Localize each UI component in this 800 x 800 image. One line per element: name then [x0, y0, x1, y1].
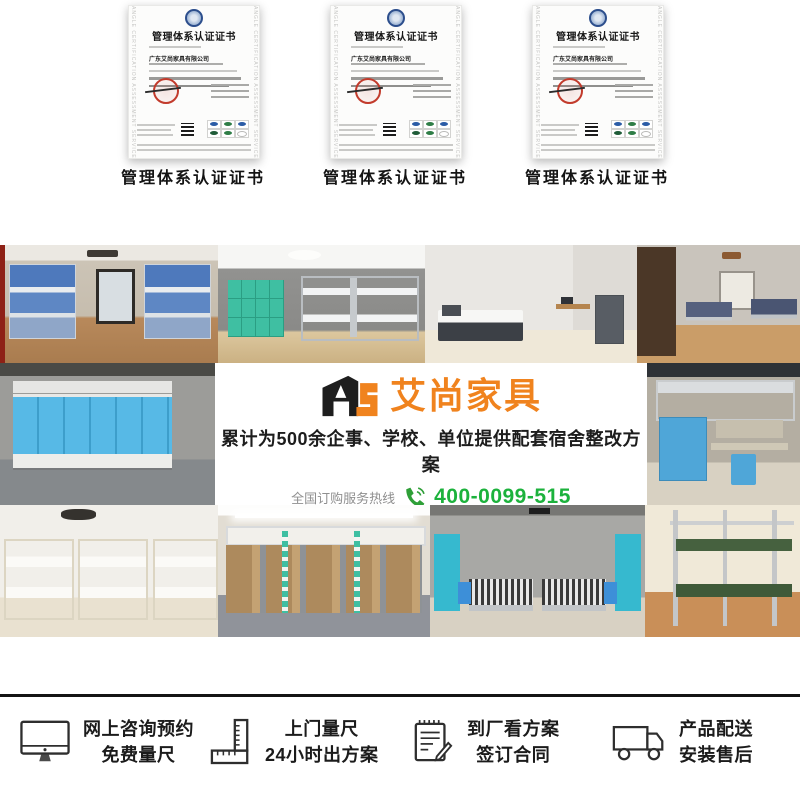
teal-wardrobe-right	[615, 534, 641, 611]
photo-green-board-bunk-room	[645, 505, 800, 637]
ceiling-light	[87, 250, 118, 257]
certificate-card: ANGLE CERTIFICATION ASSESSMENT SERVICES …	[128, 5, 260, 159]
photo-single-bed-study-room	[425, 245, 637, 363]
bunk-bed-left	[9, 264, 76, 339]
contract-icon	[412, 718, 454, 766]
certifier-emblem-icon	[387, 9, 405, 27]
desk	[556, 304, 590, 309]
feature-line2: 签订合同	[467, 742, 560, 768]
teal-ladder	[354, 531, 360, 613]
bed-right	[751, 299, 797, 344]
certificate-caption: 管理体系认证证书	[295, 164, 495, 188]
photo-teal-wardrobe-twin-room	[430, 505, 645, 637]
bunk-post	[772, 510, 777, 626]
qr-code	[383, 123, 396, 136]
page: ANGLE CERTIFICATION ASSESSMENT SERVICES …	[0, 0, 800, 800]
ceiling-light	[61, 509, 96, 520]
blue-chair	[458, 582, 471, 604]
shelf	[716, 420, 783, 438]
certificate-company: 广东艾尚家具有限公司	[149, 54, 209, 63]
photo-cyan-cabinet-dorm	[0, 363, 215, 505]
ceiling-light	[722, 252, 742, 259]
hotline-label: 全国订购服务热线	[291, 488, 395, 507]
banner-subtitle: 累计为500余企事、学校、单位提供配套宿舍整改方案	[215, 425, 647, 477]
certificate-title: 管理体系认证证书	[331, 28, 461, 43]
feature-onsite-measure: 上门量尺 24小时出方案	[210, 710, 379, 774]
locker-cabinet	[228, 280, 284, 337]
qr-code	[181, 123, 194, 136]
laptop	[561, 297, 574, 304]
as-logo-icon	[320, 374, 380, 418]
bed-left	[686, 302, 732, 342]
window	[96, 269, 135, 325]
feature-sign-contract: 到厂看方案 签订合同	[412, 710, 560, 774]
features-divider	[0, 694, 800, 697]
feature-online-consult: 网上咨询预约 免费量尺	[20, 710, 194, 774]
photo-wood-floor-bunk-room	[637, 245, 800, 363]
feature-line1: 上门量尺	[265, 716, 379, 742]
metal-bunk-bed	[301, 276, 419, 341]
certificate-title: 管理体系认证证书	[533, 28, 663, 43]
feature-line1: 到厂看方案	[467, 716, 560, 742]
wardrobe-desk-units	[226, 545, 421, 614]
photo-cream-bunk-room	[0, 505, 218, 637]
feature-line2: 免费量尺	[83, 742, 194, 768]
brand-banner: 艾尚家具 累计为500余企事、学校、单位提供配套宿舍整改方案 全国订购服务热线 …	[215, 363, 647, 505]
logo-row: 艾尚家具	[215, 374, 647, 418]
truck-icon	[612, 721, 666, 763]
ceiling-light	[288, 250, 321, 261]
photo-loft-bed-desk-room	[647, 363, 800, 505]
qr-code	[585, 123, 598, 136]
certificate-company: 广东艾尚家具有限公司	[553, 54, 613, 63]
brand-name: 艾尚家具	[390, 378, 542, 414]
loft-rail	[13, 381, 172, 392]
feature-delivery-install: 产品配送 安装售后	[612, 710, 753, 774]
photo-teal-lockers-bunk-room	[218, 245, 425, 363]
desk-row	[13, 454, 172, 470]
striped-bed-left	[469, 579, 534, 611]
bunk-bed	[153, 539, 218, 620]
ceiling-light	[529, 508, 551, 515]
teal-wardrobe-left	[434, 534, 460, 611]
feature-line2: 安装售后	[679, 742, 753, 768]
dark-wardrobe	[637, 247, 676, 356]
striped-bed-right	[542, 579, 607, 611]
feature-line1: 产品配送	[679, 716, 753, 742]
blue-chair	[604, 582, 617, 604]
certificate-card: ANGLE CERTIFICATION ASSESSMENT SERVICES …	[532, 5, 664, 159]
certificate-title: 管理体系认证证书	[129, 28, 259, 43]
certificate-caption: 管理体系认证证书	[497, 164, 697, 188]
red-wall-strip	[0, 245, 5, 363]
blue-wardrobe	[659, 417, 707, 481]
cove-light	[235, 514, 413, 518]
ruler-icon	[210, 718, 252, 766]
bunk-ladder	[350, 278, 356, 337]
bunk-bed	[78, 539, 147, 620]
desk	[711, 443, 788, 450]
certificate-card: ANGLE CERTIFICATION ASSESSMENT SERVICES …	[330, 5, 462, 159]
certificate-caption: 管理体系认证证书	[93, 164, 293, 188]
monitor-icon	[20, 719, 70, 765]
storage-cabinet	[595, 295, 625, 344]
bunk-post	[673, 510, 678, 626]
green-board-upper	[676, 539, 792, 551]
green-board-lower	[676, 584, 792, 597]
feature-line1: 网上咨询预约	[83, 716, 194, 742]
certifier-emblem-icon	[589, 9, 607, 27]
photo-loft-over-wardrobe-room	[218, 505, 430, 637]
loft-bed-rail	[656, 380, 795, 421]
cyan-cabinets	[13, 394, 172, 457]
blue-chair	[731, 454, 755, 485]
certifier-emblem-icon	[185, 9, 203, 27]
certificate-company: 广东艾尚家具有限公司	[351, 54, 411, 63]
bunk-bed-right	[144, 264, 211, 339]
teal-ladder	[282, 531, 288, 613]
loft-rail	[226, 526, 425, 546]
feature-line2: 24小时出方案	[265, 742, 379, 768]
photo-blue-bunk-dorm	[0, 245, 218, 363]
bunk-bed	[4, 539, 73, 620]
bunk-post	[723, 510, 728, 626]
pillow	[442, 305, 461, 316]
